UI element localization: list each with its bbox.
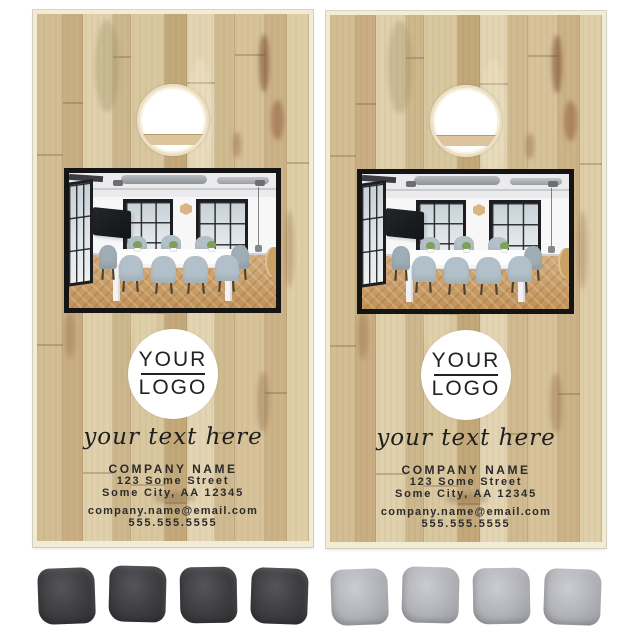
bean-bag-row-board-1 [38, 566, 308, 622]
bean-bag [250, 567, 309, 625]
photo-chair-legs [480, 284, 498, 295]
cornhole-board-unit-board-2: YOUR LOGO your text here COMPANY NAME 12… [326, 11, 606, 643]
photo-vent [548, 181, 558, 187]
tagline-text: your text here [37, 424, 309, 450]
bean-bag [37, 567, 96, 625]
bean-bag [330, 568, 389, 626]
photo-chair-legs [511, 282, 528, 293]
email-text: company.name@email.com [37, 505, 309, 517]
meeting-room-scene [69, 173, 276, 308]
photo-chair-legs [102, 269, 115, 280]
logo-divider-rule [141, 373, 205, 375]
photo-pendant-cord [258, 187, 259, 247]
product-stage: YOUR LOGO your text here COMPANY NAME 12… [0, 0, 644, 644]
photo-plant [500, 242, 509, 249]
photo-chair [412, 256, 436, 282]
logo-line-1: YOUR [139, 349, 208, 371]
photo-chair-legs [187, 283, 205, 294]
photo-plant [462, 242, 471, 249]
photo-chair [392, 246, 410, 270]
photo-chair [99, 245, 117, 269]
photo-wicker-chair [558, 248, 569, 278]
photo-window-left [362, 180, 386, 288]
photo-vent [255, 180, 265, 186]
photo-pendant-lamp [548, 246, 555, 253]
photo-pendant-lamp [255, 245, 262, 252]
address-line-2: Some City, AA 12345 [330, 488, 602, 500]
photo-plant [169, 241, 178, 248]
photo-ceiling-beam [69, 188, 276, 190]
photo-chair [508, 256, 532, 282]
cornhole-board: YOUR LOGO your text here COMPANY NAME 12… [326, 11, 606, 548]
photo-chair-legs [122, 281, 139, 292]
bean-bag [108, 565, 166, 622]
tagline-text: your text here [330, 425, 602, 451]
bean-bag [401, 566, 459, 623]
meeting-room-scene [362, 174, 569, 309]
cornhole-board: YOUR LOGO your text here COMPANY NAME 12… [33, 10, 313, 547]
photo-chair-legs [395, 270, 408, 281]
bean-bag [473, 568, 531, 625]
photo-pendant-cord [551, 188, 552, 248]
photo-wall-ornament [180, 203, 192, 215]
cornhole-hole [430, 85, 502, 157]
photo-chair-legs [155, 283, 173, 294]
company-name-text: COMPANY NAME [37, 462, 309, 476]
photo-wicker-chair [265, 247, 276, 277]
photo-chair [119, 255, 143, 281]
logo-line-2: LOGO [139, 377, 208, 399]
photo-tv [386, 208, 424, 240]
bean-bag [543, 568, 602, 626]
bean-bag-row-board-2 [331, 567, 601, 623]
photo-plant [207, 241, 216, 248]
photo-plant [426, 242, 435, 249]
phone-text: 555.555.5555 [37, 517, 309, 529]
company-name-text: COMPANY NAME [330, 463, 602, 477]
meeting-room-photo [64, 168, 281, 313]
address-line-2: Some City, AA 12345 [37, 487, 309, 499]
logo-placeholder-circle: YOUR LOGO [421, 330, 511, 420]
cornhole-hole [137, 84, 209, 156]
photo-chair-legs [218, 281, 235, 292]
photo-chair [476, 257, 501, 284]
logo-line-2: LOGO [432, 378, 501, 400]
logo-divider-rule [434, 374, 498, 376]
hole-support-bar [430, 135, 502, 146]
photo-window-left [69, 179, 93, 287]
hole-support-bar [137, 134, 209, 145]
photo-chair [151, 256, 176, 283]
photo-chair-legs [448, 284, 466, 295]
cornhole-board-unit-board-1: YOUR LOGO your text here COMPANY NAME 12… [33, 10, 313, 642]
photo-vent [406, 181, 416, 187]
photo-chair-legs [415, 282, 432, 293]
photo-chair [183, 256, 208, 283]
photo-air-duct [121, 175, 207, 184]
meeting-room-photo [357, 169, 574, 314]
photo-chair [215, 255, 239, 281]
photo-air-duct [414, 176, 500, 185]
logo-line-1: YOUR [432, 350, 501, 372]
photo-ceiling-beam [362, 189, 569, 191]
photo-wall-ornament [473, 204, 485, 216]
photo-chair [444, 257, 469, 284]
bean-bag [180, 567, 238, 624]
address-line-1: 123 Some Street [330, 476, 602, 488]
logo-placeholder-circle: YOUR LOGO [128, 329, 218, 419]
email-text: company.name@email.com [330, 506, 602, 518]
photo-plant [133, 241, 142, 248]
address-line-1: 123 Some Street [37, 475, 309, 487]
photo-vent [113, 180, 123, 186]
phone-text: 555.555.5555 [330, 518, 602, 530]
photo-tv [93, 207, 131, 239]
